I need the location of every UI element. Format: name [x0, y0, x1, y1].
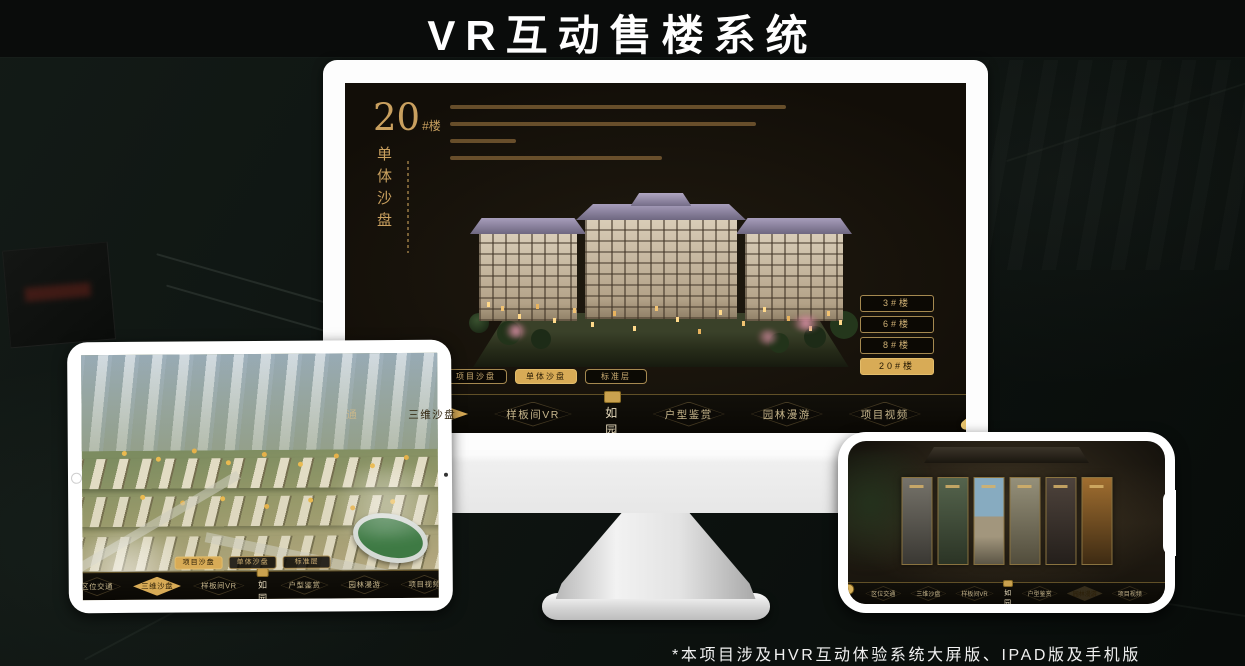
- gallery-panel[interactable]: [1081, 477, 1112, 565]
- unit-headline: 20#楼 单体沙盘: [373, 99, 441, 266]
- background-buildings: [975, 60, 1245, 270]
- tab-project-sandbox[interactable]: 项目沙盘: [175, 556, 223, 569]
- headline-english-decor: [407, 161, 409, 253]
- building-center: [585, 219, 737, 319]
- tablet-screen: 项目沙盘 单体沙盘 标准层 区位交通 三维沙盘 样板间VR 如园 户型鉴赏 园林…: [81, 353, 439, 600]
- nav-item-floorplans[interactable]: 户型鉴赏: [280, 576, 328, 595]
- nav-item-3d-sandbox[interactable]: 三维沙盘: [133, 577, 181, 596]
- marketing-poster: VR互动售楼系统 20#楼 单体沙盘: [0, 0, 1245, 666]
- tablet-home-button[interactable]: [71, 472, 82, 483]
- blossom-tree: [505, 323, 527, 339]
- aerial-city-backdrop: [81, 353, 439, 452]
- phone-notch: [1163, 490, 1176, 556]
- floor-button-8[interactable]: 8#楼: [860, 337, 934, 354]
- building-right-wing: [745, 233, 843, 321]
- floor-button-3[interactable]: 3#楼: [860, 295, 934, 312]
- nav-item-showroom-vr[interactable]: 样板间VR: [494, 402, 572, 427]
- gallery-panel[interactable]: [937, 477, 968, 565]
- building-model: [457, 159, 865, 367]
- gallery-panel[interactable]: [901, 477, 932, 565]
- scroll-menu-icon[interactable]: [1160, 585, 1165, 602]
- nav-item-showroom-vr[interactable]: 样板间VR: [193, 576, 245, 595]
- tab-single-sandbox[interactable]: 单体沙盘: [515, 369, 577, 384]
- brand-logo: 如园: [1003, 580, 1013, 605]
- building-number-badges: [122, 451, 127, 456]
- nav-item-floorplans[interactable]: 户型鉴赏: [1022, 586, 1058, 601]
- nav-item-3d-sandbox[interactable]: 三维沙盘: [910, 586, 946, 601]
- nav-item-showroom-vr[interactable]: 样板间VR: [955, 586, 993, 601]
- gallery-panel[interactable]: [1009, 477, 1040, 565]
- tablet-bezel: 项目沙盘 单体沙盘 标准层 区位交通 三维沙盘 样板间VR 如园 户型鉴赏 园林…: [67, 340, 453, 614]
- gold-seal-icon: [1003, 580, 1013, 587]
- nav-item-location[interactable]: 区位交通: [81, 577, 121, 596]
- unit-number-suffix: #楼: [422, 119, 441, 133]
- blossom-tree: [791, 315, 821, 331]
- nav-item-garden-tour[interactable]: 园林漫游: [1067, 586, 1103, 601]
- main-nav-bar: 区位交通 三维沙盘 样板间VR 如园 户型鉴赏 园林漫游 项目视频: [848, 582, 1165, 604]
- tab-project-sandbox[interactable]: 项目沙盘: [445, 369, 507, 384]
- floor-button-6[interactable]: 6#楼: [860, 316, 934, 333]
- tab-standard-floor[interactable]: 标准层: [283, 556, 331, 569]
- gallery-panel[interactable]: [1045, 477, 1076, 565]
- unit-number: 20: [373, 96, 420, 139]
- blossom-tree: [757, 329, 779, 345]
- view-tab-group: 项目沙盘 单体沙盘 标准层: [445, 369, 647, 384]
- gallery-panel[interactable]: [973, 477, 1004, 565]
- view-tab-group: 项目沙盘 单体沙盘 标准层: [175, 556, 331, 570]
- nav-item-floorplans[interactable]: 户型鉴赏: [653, 402, 725, 427]
- lit-windows: [487, 302, 490, 307]
- tab-single-sandbox[interactable]: 单体沙盘: [229, 556, 277, 569]
- phone-device: 区位交通 三维沙盘 样板间VR 如园 户型鉴赏 园林漫游 项目视频: [838, 432, 1175, 613]
- floor-button-20[interactable]: 20#楼: [860, 358, 934, 375]
- gold-seal-icon: [604, 391, 621, 403]
- brand-logo: 如园: [256, 567, 268, 600]
- tablet-camera-icon: [444, 472, 448, 476]
- unit-subtitle: 单体沙盘: [373, 146, 394, 266]
- monitor-stand-neck: [556, 513, 756, 599]
- nav-item-project-video[interactable]: 项目视频: [849, 402, 921, 427]
- tab-standard-floor[interactable]: 标准层: [585, 369, 647, 384]
- tablet-device: 项目沙盘 单体沙盘 标准层 区位交通 三维沙盘 样板间VR 如园 户型鉴赏 园林…: [67, 340, 453, 614]
- nav-item-garden-tour[interactable]: 园林漫游: [340, 575, 388, 594]
- page-title: VR互动售楼系统: [0, 2, 1245, 63]
- scroll-menu-icon[interactable]: [959, 397, 966, 431]
- footnote-text: *本项目涉及HVR互动体验系统大屏版、IPAD版及手机版: [672, 641, 1141, 665]
- phone-screen: 区位交通 三维沙盘 样板间VR 如园 户型鉴赏 园林漫游 项目视频: [848, 441, 1165, 604]
- nav-item-project-video[interactable]: 项目视频: [400, 575, 438, 594]
- nav-item-project-video[interactable]: 项目视频: [1112, 586, 1148, 601]
- scroll-menu-icon[interactable]: [848, 585, 853, 602]
- floor-button-group: 3#楼 6#楼 8#楼 20#楼: [860, 295, 934, 375]
- nav-item-location[interactable]: 区位交通: [865, 586, 901, 601]
- building-left-wing: [479, 233, 577, 321]
- brand-logo: 如园: [604, 391, 621, 434]
- background-plaque: [2, 242, 116, 349]
- nav-item-garden-tour[interactable]: 园林漫游: [751, 402, 823, 427]
- interior-ceiling-beam: [924, 447, 1089, 463]
- panorama-gallery: [901, 477, 1112, 565]
- main-nav-bar: 区位交通 三维沙盘 样板间VR 如园 户型鉴赏 园林漫游 项目视频: [83, 570, 439, 600]
